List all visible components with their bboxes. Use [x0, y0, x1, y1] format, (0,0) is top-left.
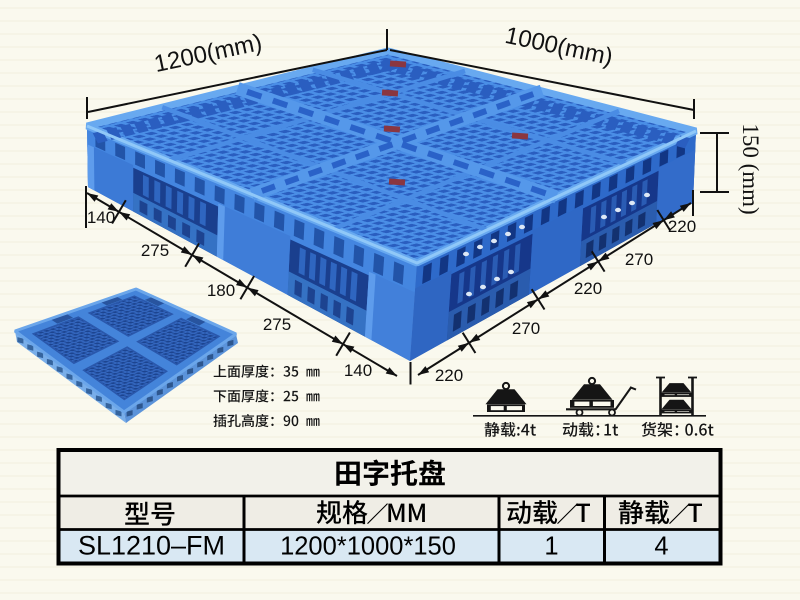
svg-text:220: 220 — [435, 366, 463, 385]
svg-text:SL1210–FM: SL1210–FM — [78, 531, 225, 561]
svg-text:140: 140 — [344, 361, 372, 380]
svg-text:1: 1 — [544, 533, 558, 561]
svg-text:4: 4 — [654, 533, 668, 561]
svg-text:270: 270 — [512, 319, 540, 338]
svg-text:275: 275 — [141, 241, 169, 260]
svg-text:140: 140 — [87, 208, 115, 227]
svg-text:275: 275 — [263, 315, 291, 334]
svg-text:150 (mm): 150 (mm) — [738, 123, 763, 214]
svg-text:1200*1000*150: 1200*1000*150 — [280, 533, 456, 561]
svg-text:220: 220 — [574, 279, 602, 298]
svg-text:270: 270 — [625, 250, 653, 269]
svg-text:220: 220 — [668, 217, 696, 236]
svg-text:180: 180 — [207, 281, 235, 300]
